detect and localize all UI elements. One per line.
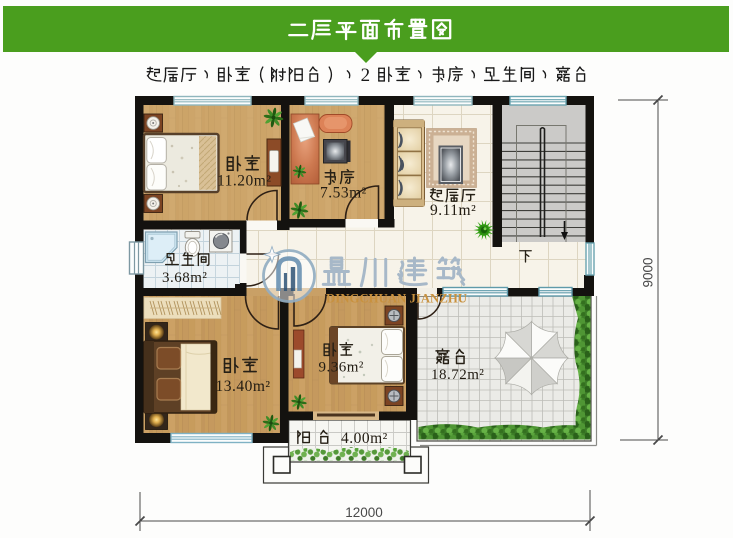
svg-text:18.72m²: 18.72m² (431, 367, 484, 383)
svg-text:2: 2 (361, 65, 371, 86)
svg-text:3.68m²: 3.68m² (162, 270, 207, 286)
svg-text:12000: 12000 (345, 505, 383, 520)
svg-text:DINGCHUAN JIANZHU: DINGCHUAN JIANZHU (326, 292, 467, 306)
svg-text:11.20m²: 11.20m² (217, 173, 272, 190)
svg-text:9000: 9000 (641, 257, 656, 287)
svg-text:9.11m²: 9.11m² (430, 202, 476, 219)
svg-text:4.00m²: 4.00m² (341, 430, 388, 447)
svg-text:9.36m²: 9.36m² (319, 360, 364, 376)
svg-text:13.40m²: 13.40m² (216, 378, 271, 395)
svg-text:7.53m²: 7.53m² (320, 185, 367, 202)
